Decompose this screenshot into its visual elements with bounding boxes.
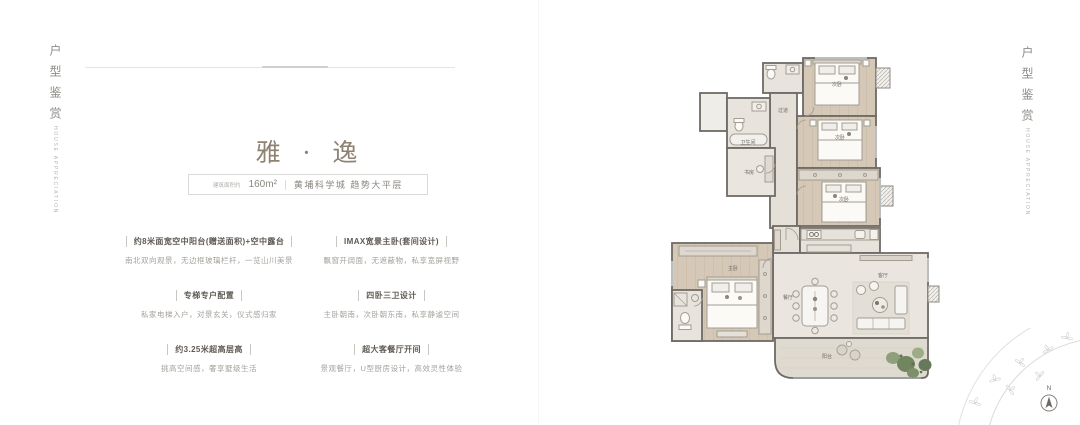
room-label-dining: 餐厅 — [783, 294, 793, 301]
feature-desc: 挑高空间感，奢享墅级生活 — [125, 363, 293, 374]
info-divider — [285, 180, 286, 190]
page-title: 雅 · 逸 — [180, 133, 440, 169]
kitchen-sink-icon — [855, 231, 865, 239]
flower-icon — [969, 396, 982, 406]
feature-item: 专梯专户配置 私家电梯入户，对景玄关，仪式感归家 — [125, 285, 293, 320]
feature-desc: 南北双向观景，无边框玻璃栏杆，一览山川美景 — [125, 255, 293, 266]
right-page-side-label-en: HOUSE APPRECIATION — [1024, 128, 1030, 216]
toilet-tank — [766, 66, 776, 70]
chair-icon — [757, 166, 764, 173]
vanity-icon — [786, 65, 799, 74]
room-label-master: 主卧 — [728, 265, 738, 272]
floor-plan: 过道 卫生间 次卧 次卧 次卧 书房 主卧 餐厅 客厅 阳台 — [655, 46, 945, 406]
room-label-balcony: 阳台 — [822, 353, 832, 360]
desk-icon — [765, 156, 773, 182]
area-info-box: 建筑面积约 160m² 黄埔科学城 趋势大平层 — [188, 174, 428, 195]
right-page-side-label: 户型鉴赏 — [1019, 46, 1036, 130]
feature-item: 约3.25米超高层高 挑高空间感，奢享墅级生活 — [125, 339, 293, 374]
room-label-hallway: 过道 — [778, 107, 788, 114]
brochure-spread: 户型鉴赏 HOUSE APPRECIATION 雅 · 逸 建筑面积约 160m… — [0, 0, 1080, 425]
room-label-bedroom1: 次卧 — [832, 81, 842, 88]
room-label-study: 书房 — [744, 169, 754, 176]
flower-icon — [1040, 342, 1053, 353]
flower-icon — [1015, 355, 1028, 367]
feature-item: IMAX宽景主卧(套间设计) 飘窗开阔面，无遮蔽物，私享宽屏视野 — [318, 231, 465, 266]
toilet-icon — [767, 69, 775, 79]
feature-title: 超大客餐厅开间 — [354, 344, 429, 355]
toilet-tank — [734, 119, 744, 123]
feature-title: 专梯专户配置 — [176, 290, 242, 301]
room-utility — [700, 93, 727, 131]
ac-platform-icon — [876, 68, 890, 88]
ac-platform-icon — [928, 286, 939, 302]
feature-desc: 景观餐厅，U型厨房设计，高效灵性体验 — [318, 363, 465, 374]
corner-ornament — [915, 328, 1080, 425]
feature-title: 约3.25米超高层高 — [167, 344, 251, 355]
kitchen-island-icon — [807, 245, 851, 252]
toilet-icon — [681, 313, 690, 324]
shoe-cabinet-icon — [775, 230, 781, 250]
area-prefix-label: 建筑面积约 — [213, 181, 241, 189]
room-label-living: 客厅 — [878, 272, 888, 279]
feature-title: 约8米面宽空中阳台(赠送面积)+空中露台 — [126, 236, 292, 247]
feature-item: 约8米面宽空中阳台(赠送面积)+空中露台 南北双向观景，无边框玻璃栏杆，一览山川… — [125, 231, 293, 266]
feature-title: 四卧三卫设计 — [358, 290, 424, 301]
bed-icon — [698, 277, 757, 337]
tv-console-icon — [860, 256, 912, 261]
feature-title: IMAX宽景主卧(套间设计) — [336, 236, 447, 247]
feature-desc: 主卧朝南，次卧朝东南，私享静谧空间 — [318, 309, 465, 320]
feature-item: 超大客餐厅开间 景观餐厅，U型厨房设计，高效灵性体验 — [318, 339, 465, 374]
left-page-side-label: 户型鉴赏 — [47, 44, 64, 128]
page-fold-line — [538, 0, 539, 425]
room-label-bath: 卫生间 — [740, 139, 755, 146]
area-value: 160m² — [249, 179, 277, 190]
feature-desc: 飘窗开阔面，无遮蔽物，私享宽屏视野 — [318, 255, 465, 266]
ac-platform-icon — [880, 186, 893, 206]
feature-item: 四卧三卫设计 主卧朝南，次卧朝东南，私享静谧空间 — [318, 285, 465, 320]
coffee-table-icon — [873, 298, 888, 313]
flower-icon — [1006, 382, 1018, 395]
flower-icon — [1061, 332, 1073, 341]
location-label: 黄埔科学城 趋势大平层 — [294, 178, 403, 191]
feature-desc: 私家电梯入户，对景玄关，仪式感归家 — [125, 309, 293, 320]
toilet-tank — [679, 325, 691, 330]
decorative-divider-accent — [262, 66, 328, 68]
left-page-side-label-en: HOUSE APPRECIATION — [52, 126, 58, 214]
flower-icon — [1032, 368, 1044, 381]
room-label-bedroom3: 次卧 — [839, 196, 849, 203]
feature-list: 约8米面宽空中阳台(赠送面积)+空中露台 南北双向观景，无边框玻璃栏杆，一览山川… — [125, 231, 465, 374]
flower-icon — [988, 373, 1001, 382]
room-label-bedroom2: 次卧 — [835, 134, 845, 141]
vanity-icon — [752, 102, 766, 111]
fridge-icon — [870, 230, 878, 240]
